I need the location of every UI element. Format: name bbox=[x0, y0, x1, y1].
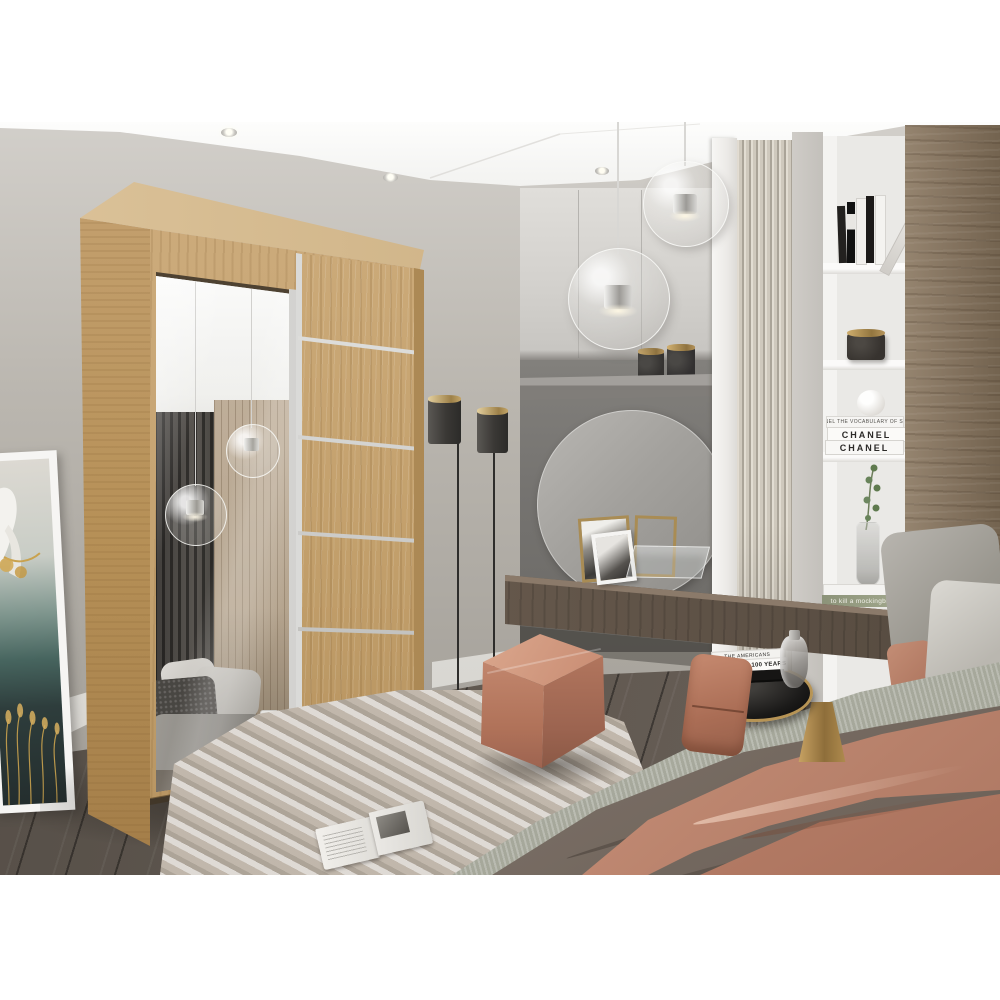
book-spine bbox=[866, 196, 874, 263]
spotlight-icon bbox=[595, 167, 609, 175]
floor-lamp-pole bbox=[457, 402, 459, 712]
pendant-cord bbox=[617, 122, 619, 254]
shelf-board bbox=[823, 360, 908, 370]
spotlight-icon bbox=[383, 173, 398, 182]
book-spine bbox=[847, 202, 855, 263]
glass-vase bbox=[856, 522, 880, 586]
eucalyptus-sprig bbox=[846, 460, 896, 530]
book-spine bbox=[875, 195, 886, 265]
canister-gold-lid bbox=[667, 344, 695, 351]
bedroom-photo: CHANEL THE VOCABULARY OF STYLE CHANEL CH… bbox=[0, 122, 1000, 875]
floor-lamp-shade-cap bbox=[477, 407, 508, 415]
product-photo-page: CHANEL THE VOCABULARY OF STYLE CHANEL CH… bbox=[0, 0, 1000, 1000]
pouf bbox=[476, 632, 608, 770]
vase-neck bbox=[789, 630, 800, 640]
candle-gold-lid bbox=[847, 329, 885, 337]
pendant-bulb-glow bbox=[669, 210, 701, 222]
candle-jar bbox=[847, 333, 885, 360]
floor-lamp-shade bbox=[428, 398, 461, 444]
canister bbox=[667, 347, 695, 378]
decor-sphere bbox=[857, 390, 885, 416]
floor-lamp-shade-cap bbox=[428, 395, 461, 403]
canister-gold-lid bbox=[638, 348, 664, 355]
glass-jewelry-box bbox=[626, 545, 710, 578]
smoked-glass-vase bbox=[780, 636, 808, 688]
book-chanel-2: CHANEL bbox=[825, 440, 904, 455]
floor-lamp-shade bbox=[477, 410, 508, 453]
pendant-bulb-glow bbox=[598, 304, 638, 318]
pendant-cord bbox=[684, 122, 686, 166]
spotlight-icon bbox=[221, 128, 237, 137]
canister bbox=[638, 351, 664, 379]
